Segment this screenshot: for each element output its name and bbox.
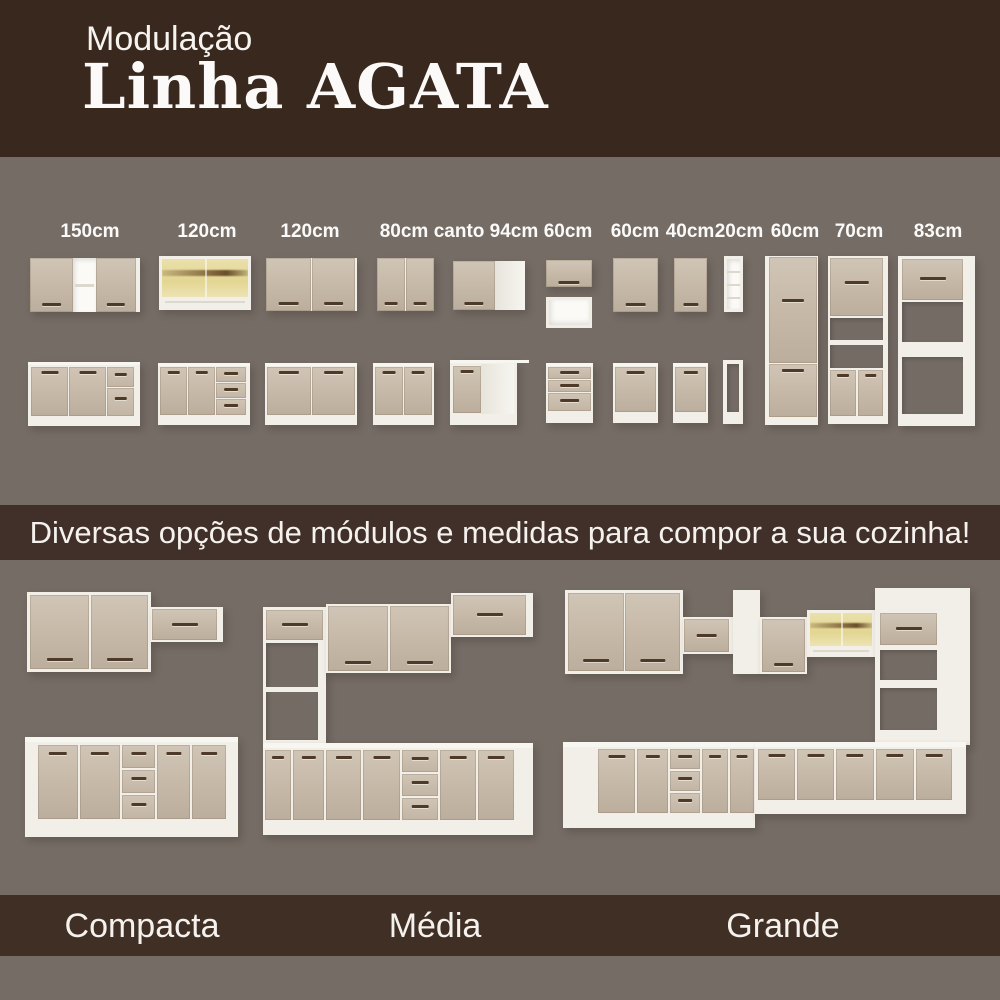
open-niche bbox=[880, 650, 937, 680]
module-120cm-base-cabinet bbox=[265, 363, 357, 425]
module-60cm-open-box bbox=[546, 297, 592, 328]
module-size-label: 60cm bbox=[771, 221, 820, 243]
module-120cm-base-cabinet-drawers bbox=[158, 363, 250, 425]
compacta-bridge-cabinet bbox=[151, 607, 223, 642]
cabinet-door bbox=[830, 258, 883, 316]
drawer bbox=[548, 393, 591, 411]
drawer bbox=[216, 383, 246, 398]
open-niche bbox=[902, 357, 963, 414]
cabinet-door bbox=[836, 749, 874, 800]
cabinet-door bbox=[769, 257, 817, 363]
grande-wall-cabinet-right bbox=[760, 617, 807, 674]
module-size-label: 40cm bbox=[666, 221, 715, 243]
cabinet-door bbox=[440, 750, 476, 820]
cabinet-door bbox=[390, 606, 449, 671]
drawer bbox=[122, 770, 155, 793]
compacta-base-cabinet bbox=[25, 737, 238, 837]
shelf-line bbox=[75, 284, 94, 287]
cabinet-door bbox=[902, 259, 963, 300]
cabinet-door bbox=[266, 258, 311, 311]
module-150cm-base-cabinet bbox=[28, 362, 140, 426]
module-size-label: 60cm bbox=[611, 221, 660, 243]
corner-panel bbox=[495, 261, 525, 310]
module-60cm-drawer-base bbox=[546, 363, 593, 423]
shelf-line bbox=[727, 284, 740, 286]
drawer bbox=[670, 749, 700, 769]
drawer bbox=[216, 367, 246, 382]
module-size-label: 60cm bbox=[544, 221, 593, 243]
module-size-label: 120cm bbox=[177, 221, 236, 243]
cabinet-door bbox=[312, 258, 355, 311]
cabinet-door bbox=[762, 619, 805, 672]
cabinet-door bbox=[265, 750, 291, 820]
shelf-line bbox=[727, 297, 740, 299]
module-20cm-narrow-unit bbox=[723, 360, 743, 424]
module-60cm-wall-cabinet bbox=[613, 258, 658, 312]
grande-wall-cabinet-left bbox=[565, 590, 683, 674]
cabinet-door bbox=[266, 610, 323, 640]
shelf bbox=[830, 340, 883, 345]
cabinet-door bbox=[615, 367, 656, 412]
cabinet-door bbox=[328, 606, 388, 671]
kitchen-label-media: Média bbox=[389, 907, 482, 946]
drawer bbox=[216, 399, 246, 415]
cabinet-door bbox=[160, 367, 187, 415]
cabinet-door bbox=[674, 258, 707, 312]
module-canto-94cm-base-cabinet bbox=[450, 360, 517, 425]
cabinet-door bbox=[293, 750, 324, 820]
cabinet-door bbox=[675, 367, 706, 412]
cabinet-door bbox=[188, 367, 215, 415]
module-60cm-top-cabinet bbox=[546, 260, 592, 287]
page-title: Linha AGATA bbox=[82, 50, 549, 123]
media-bridge-cabinet bbox=[451, 593, 533, 637]
module-80cm-base-cabinet bbox=[373, 363, 434, 425]
grande-bridge-cabinet bbox=[683, 617, 733, 654]
countertop-extension bbox=[517, 360, 529, 363]
cabinet-door bbox=[613, 258, 658, 312]
cabinet-door bbox=[880, 613, 937, 645]
drawer bbox=[402, 750, 438, 772]
cabinet-door bbox=[797, 749, 834, 800]
drawer bbox=[122, 745, 155, 768]
module-83cm-tall-cabinet bbox=[898, 256, 975, 426]
drawer bbox=[548, 367, 591, 379]
glass-door bbox=[810, 613, 872, 646]
drawer bbox=[107, 367, 134, 387]
cabinet-door bbox=[375, 367, 403, 415]
cabinet-door bbox=[96, 258, 136, 312]
module-20cm-shelf-unit bbox=[724, 256, 743, 312]
cabinet-door bbox=[326, 750, 361, 820]
module-size-label: 83cm bbox=[914, 221, 963, 243]
module-size-label: 20cm bbox=[715, 221, 764, 243]
header-band: Modulação Linha AGATA bbox=[0, 0, 1000, 157]
drawer bbox=[670, 793, 700, 813]
module-size-label: 150cm bbox=[60, 221, 119, 243]
cabinet-door bbox=[702, 749, 728, 813]
countertop bbox=[673, 363, 708, 366]
drawer bbox=[107, 388, 134, 416]
cabinet-door bbox=[453, 366, 481, 413]
cabinet-door bbox=[916, 749, 952, 800]
module-120cm-wall-cabinet bbox=[266, 258, 357, 311]
grande-base-cabinet-left bbox=[563, 742, 755, 828]
countertop bbox=[28, 362, 140, 365]
countertop bbox=[613, 363, 658, 366]
kitchen-label-compacta: Compacta bbox=[65, 907, 220, 946]
module-40cm-base-cabinet bbox=[673, 363, 708, 423]
grande-glass-wall-cabinet bbox=[807, 610, 875, 657]
cabinet-door bbox=[404, 367, 432, 415]
open-niche bbox=[880, 688, 937, 730]
module-60cm-base-cabinet bbox=[613, 363, 658, 423]
shelf-line bbox=[165, 301, 245, 303]
drawer bbox=[122, 795, 155, 819]
cabinet-door bbox=[377, 258, 405, 311]
countertop bbox=[373, 363, 434, 366]
countertop bbox=[450, 360, 517, 363]
cabinet-door bbox=[157, 745, 190, 819]
product-infographic: Modulação Linha AGATA 150cm 120cm 120cm … bbox=[0, 0, 1000, 1000]
grande-base-cabinet-right bbox=[755, 742, 966, 814]
countertop bbox=[755, 742, 966, 747]
cabinet-door bbox=[858, 370, 883, 416]
grande-corner-panel bbox=[733, 590, 760, 674]
module-size-label: 120cm bbox=[280, 221, 339, 243]
shelf-line bbox=[813, 650, 869, 652]
cabinet-door bbox=[625, 593, 680, 671]
media-tower-cabinet bbox=[263, 607, 326, 743]
drawer bbox=[548, 380, 591, 392]
module-70cm-tall-cabinet bbox=[828, 256, 888, 424]
open-niche bbox=[727, 364, 739, 412]
kitchen-label-grande: Grande bbox=[726, 907, 839, 946]
cabinet-door bbox=[406, 258, 434, 311]
glass-door bbox=[162, 259, 248, 297]
countertop bbox=[263, 743, 533, 748]
cabinet-door bbox=[267, 367, 311, 415]
module-150cm-wall-cabinet bbox=[30, 258, 140, 312]
module-80cm-wall-cabinet bbox=[377, 258, 434, 311]
module-60cm-tall-cabinet bbox=[765, 256, 818, 425]
cabinet-door bbox=[830, 370, 856, 416]
banner-text: Diversas opções de módulos e medidas par… bbox=[30, 515, 971, 551]
cabinet-door bbox=[637, 749, 668, 813]
cabinet-door bbox=[453, 595, 526, 635]
countertop bbox=[563, 742, 755, 747]
module-canto-94cm-wall-cabinet bbox=[453, 261, 525, 310]
cabinet-door bbox=[30, 258, 73, 312]
door-divider bbox=[841, 613, 843, 646]
cabinet-door bbox=[192, 745, 226, 819]
shelf bbox=[266, 687, 318, 692]
cabinet-door bbox=[546, 260, 592, 287]
cabinet-door bbox=[769, 364, 817, 417]
cabinet-door bbox=[312, 367, 355, 415]
module-size-label: 80cm bbox=[380, 221, 429, 243]
shelf-line bbox=[727, 271, 740, 273]
cabinet-door bbox=[69, 367, 106, 416]
countertop bbox=[25, 737, 238, 742]
open-niche bbox=[902, 302, 963, 342]
countertop bbox=[158, 363, 250, 366]
cabinet-door bbox=[91, 595, 148, 669]
banner-band: Diversas opções de módulos e medidas par… bbox=[0, 505, 1000, 560]
drawer bbox=[402, 798, 438, 820]
door-divider bbox=[205, 259, 207, 297]
module-size-label: 70cm bbox=[835, 221, 884, 243]
compacta-wall-cabinet bbox=[27, 592, 151, 672]
drawer bbox=[402, 774, 438, 796]
cabinet-door bbox=[38, 745, 78, 819]
grande-tower-cabinet bbox=[875, 588, 970, 745]
cabinet-door bbox=[31, 367, 68, 416]
cabinet-door bbox=[80, 745, 120, 819]
module-120cm-glass-wall-cabinet bbox=[159, 256, 251, 310]
cabinet-door bbox=[453, 261, 495, 310]
module-40cm-wall-cabinet bbox=[674, 258, 707, 312]
media-wall-cabinet bbox=[326, 604, 451, 673]
corner-panel bbox=[481, 364, 514, 414]
cabinet-door bbox=[598, 749, 635, 813]
cabinet-door bbox=[730, 749, 754, 813]
drawer bbox=[670, 771, 700, 791]
module-size-label: canto 94cm bbox=[434, 221, 539, 243]
cabinet-door bbox=[568, 593, 624, 671]
cabinet-door bbox=[478, 750, 514, 820]
cabinet-door bbox=[758, 749, 795, 800]
cabinet-door bbox=[152, 609, 217, 640]
cabinet-door bbox=[876, 749, 914, 800]
cabinet-door bbox=[30, 595, 89, 669]
countertop bbox=[265, 363, 357, 366]
cabinet-door bbox=[684, 619, 729, 652]
cabinet-door bbox=[363, 750, 400, 820]
countertop bbox=[546, 363, 593, 366]
media-base-cabinet bbox=[263, 743, 533, 835]
